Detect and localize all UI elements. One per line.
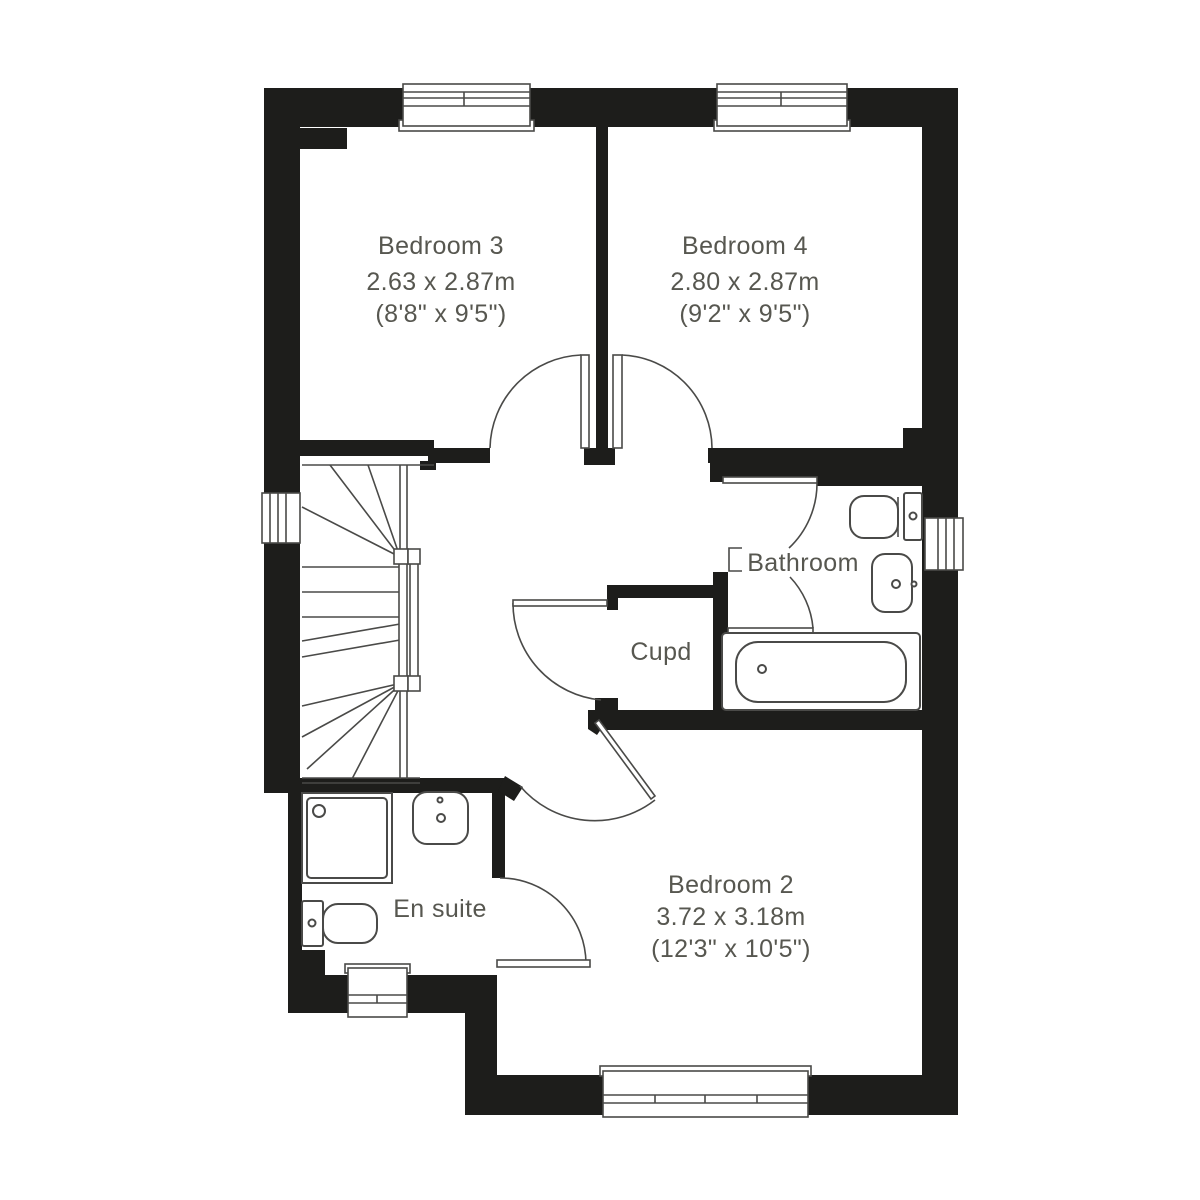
wall-left-upper (264, 88, 300, 793)
wall-bedroom4-corner-step (903, 428, 922, 449)
wall-bedroom3-bottom (428, 448, 490, 463)
wall-hall-bottom (590, 710, 922, 730)
bedroom3-size-metric: 2.63 x 2.87m (366, 268, 515, 296)
wall-bedroom-divider (596, 127, 608, 448)
ensuite-label: En suite (393, 895, 487, 923)
bathroom-window (925, 518, 963, 570)
ensuite-door (497, 878, 590, 967)
ensuite-window (345, 964, 410, 1017)
wall-cupboard-step (607, 585, 618, 610)
bedroom2-size-metric: 3.72 x 3.18m (656, 903, 805, 931)
bathroom-label: Bathroom (747, 549, 859, 577)
bedroom2-door (520, 720, 655, 821)
wall-top (264, 88, 958, 127)
wall-right (922, 88, 958, 1115)
walls (264, 88, 958, 1115)
bedroom3-size-imperial: (8'8" x 9'5") (375, 300, 506, 328)
wall-left-lower (288, 793, 302, 975)
ensuite-sink (413, 792, 468, 844)
wall-ensuite-top (288, 778, 505, 793)
wall-bathroom-top-a (713, 456, 817, 477)
staircase (302, 465, 434, 783)
wall-bathroom-top-b (817, 456, 922, 486)
wall-hall-top-left (300, 440, 434, 456)
cupboard-door (513, 600, 607, 700)
wall-divider-foot (584, 448, 615, 465)
bedroom3-label: Bedroom 3 (378, 232, 504, 260)
cupboard-label: Cupd (630, 638, 691, 666)
bathroom-fixtures (722, 493, 922, 710)
bedroom2-label: Bedroom 2 (668, 871, 794, 899)
bedroom4-door (613, 355, 712, 448)
bedroom4-label: Bedroom 4 (682, 232, 808, 260)
wall-bedroom2-left-column (465, 975, 497, 1115)
bedroom3-window (399, 84, 534, 131)
bedroom4-window (714, 84, 850, 131)
floor-plan: Bedroom 3 2.63 x 2.87m (8'8" x 9'5") Bed… (0, 0, 1200, 1200)
bedroom2-size-imperial: (12'3" x 10'5") (651, 935, 811, 963)
bathtub (722, 633, 920, 710)
bedroom4-size-imperial: (9'2" x 9'5") (679, 300, 810, 328)
stairs-window (262, 493, 300, 543)
wall-bedroom3-corner-step (300, 128, 347, 149)
shower (302, 793, 392, 883)
floor-plan-drawing: Bedroom 3 2.63 x 2.87m (8'8" x 9'5") Bed… (0, 0, 1200, 1200)
bedroom4-size-metric: 2.80 x 2.87m (670, 268, 819, 296)
wall-cupboard-top (607, 585, 713, 598)
ensuite-toilet (302, 901, 377, 946)
toilet (850, 493, 922, 540)
bedroom3-door (490, 355, 589, 448)
bedroom2-window (600, 1066, 811, 1117)
sink (872, 554, 917, 612)
